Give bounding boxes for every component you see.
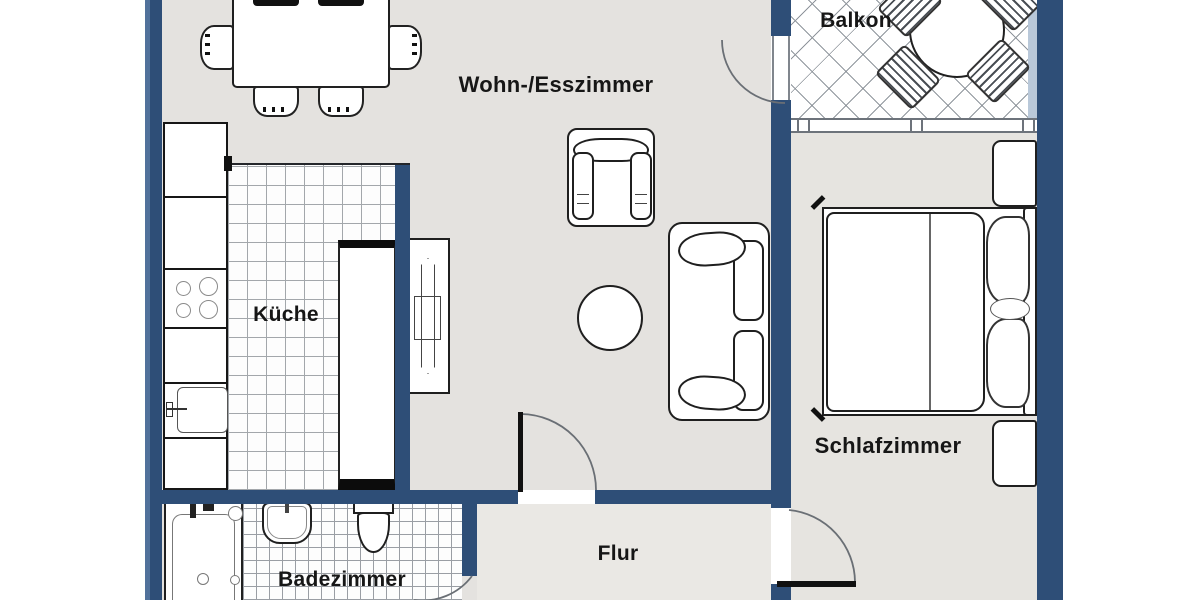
dining-chair bbox=[253, 86, 299, 117]
bedroom-door-opening bbox=[771, 508, 791, 584]
dining-chair bbox=[253, 0, 299, 6]
hall-wall-right bbox=[595, 490, 791, 504]
kitchen-counter bbox=[163, 196, 228, 270]
dining-table bbox=[232, 0, 390, 88]
dining-chair bbox=[318, 0, 364, 6]
balcony-wall bbox=[771, 0, 791, 36]
pillow bbox=[986, 318, 1030, 408]
window-frame-mark bbox=[1022, 118, 1035, 133]
stove-burner bbox=[199, 300, 218, 319]
bathtub-inner bbox=[172, 514, 235, 600]
pillow bbox=[986, 216, 1030, 304]
outer-wall-right bbox=[1037, 0, 1063, 600]
window-frame-mark bbox=[910, 118, 923, 133]
balcony-glass-door bbox=[772, 36, 790, 100]
outer-wall-left bbox=[145, 0, 162, 600]
dining-chair bbox=[318, 86, 364, 117]
nightstand bbox=[992, 140, 1037, 207]
armchair-armrest bbox=[572, 152, 594, 220]
coffee-table bbox=[577, 285, 643, 351]
sink-faucet-spout bbox=[166, 408, 187, 410]
pillow-fold bbox=[990, 298, 1030, 320]
armchair-armrest bbox=[630, 152, 652, 220]
bedroom-door-leaf bbox=[777, 581, 856, 587]
stove bbox=[163, 268, 228, 329]
tub-jet bbox=[197, 573, 209, 585]
room-label-kueche: Küche bbox=[253, 303, 319, 327]
room-label-badezimmer: Badezimmer bbox=[278, 568, 406, 592]
room-label-flur: Flur bbox=[598, 542, 639, 566]
living-bedroom-wall bbox=[771, 100, 791, 508]
duvet-fold-line bbox=[929, 214, 931, 410]
tub-jet bbox=[230, 575, 240, 585]
stove-burner bbox=[176, 281, 191, 296]
kitchen-sink bbox=[177, 387, 228, 433]
tall-cabinet bbox=[338, 240, 396, 490]
wall-end-marker bbox=[224, 156, 232, 171]
tub-fixture bbox=[228, 506, 243, 521]
kitchen-counter bbox=[163, 437, 228, 490]
room-label-wohn-esszimmer: Wohn-/Esszimmer bbox=[459, 72, 654, 98]
bed-duvet bbox=[826, 212, 985, 412]
kitchen-boundary-line bbox=[228, 163, 410, 165]
hall-wall-left bbox=[162, 490, 518, 504]
tub-fixture bbox=[203, 503, 214, 511]
tub-faucet bbox=[190, 503, 196, 518]
stove-burner bbox=[176, 303, 191, 318]
nightstand bbox=[992, 420, 1037, 487]
living-hall-door-leaf bbox=[518, 412, 523, 492]
dining-chair bbox=[200, 25, 234, 70]
kitchen-counter bbox=[163, 327, 228, 384]
floor-plan: Wohn-/Esszimmer Balkon Küche Schlafzimme… bbox=[0, 0, 1200, 600]
stove-burner bbox=[199, 277, 218, 296]
living-hall-door-opening bbox=[518, 490, 595, 504]
washbasin-faucet bbox=[285, 504, 289, 513]
kitchen-counter bbox=[163, 122, 228, 198]
bathroom-hall-wall bbox=[462, 504, 477, 576]
dining-chair bbox=[388, 25, 422, 70]
tv-bracket bbox=[414, 296, 441, 340]
window-frame-mark bbox=[797, 118, 810, 133]
kitchen-wall bbox=[395, 163, 410, 504]
balcony-railing bbox=[1028, 0, 1037, 119]
room-label-schlafzimmer: Schlafzimmer bbox=[815, 433, 962, 459]
room-label-balkon: Balkon bbox=[820, 9, 892, 33]
